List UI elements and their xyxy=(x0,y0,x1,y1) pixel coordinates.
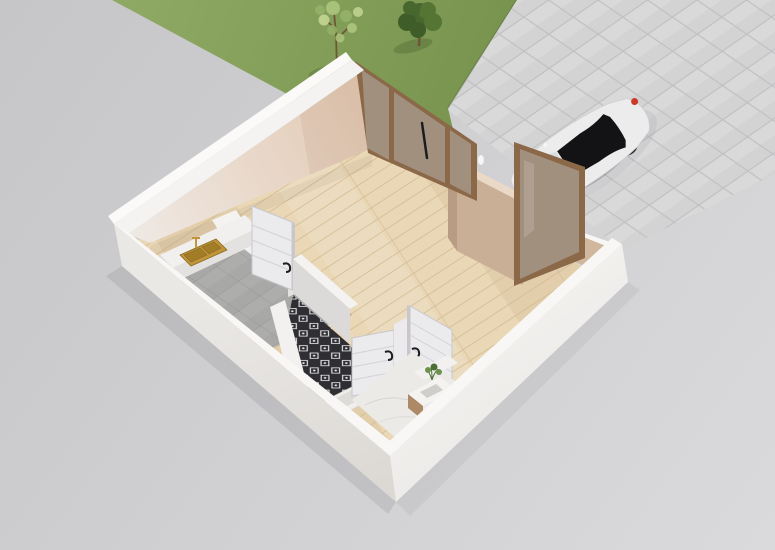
plant-leaves xyxy=(431,364,438,371)
leaf-cluster xyxy=(340,10,352,22)
leaf-cluster xyxy=(353,7,363,17)
floorplan-render xyxy=(0,0,775,550)
leaf-cluster xyxy=(315,5,325,15)
plant-leaves xyxy=(425,367,431,373)
leaf-cluster xyxy=(336,34,345,43)
leaf-cluster xyxy=(319,15,330,26)
floorplan-scene xyxy=(0,0,775,550)
leaf-cluster xyxy=(403,1,417,15)
partition-vase xyxy=(478,155,484,165)
leaf-cluster xyxy=(347,23,357,33)
plant-leaves xyxy=(436,369,442,375)
leaf-cluster xyxy=(326,1,340,15)
leaf-cluster xyxy=(419,9,429,19)
glass-panel-streak xyxy=(524,160,534,238)
leaf-cluster xyxy=(410,22,426,38)
leaf-cluster xyxy=(327,25,337,35)
